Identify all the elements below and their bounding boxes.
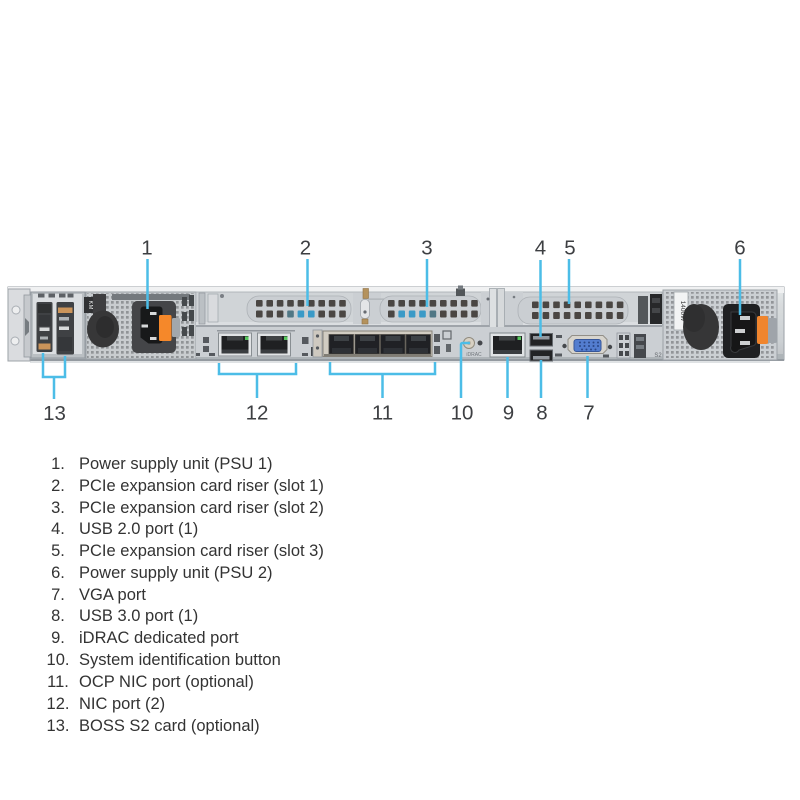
svg-text:4: 4 [535, 237, 546, 260]
svg-text:3: 3 [421, 237, 432, 260]
svg-text:8: 8 [536, 402, 547, 425]
svg-text:10: 10 [451, 402, 474, 425]
svg-text:9: 9 [503, 402, 514, 425]
svg-text:2: 2 [300, 237, 311, 260]
svg-text:5: 5 [564, 237, 575, 260]
svg-text:12: 12 [246, 402, 269, 425]
svg-text:11: 11 [372, 402, 393, 425]
svg-text:13: 13 [43, 402, 66, 425]
svg-text:1: 1 [141, 237, 152, 260]
svg-text:6: 6 [734, 237, 745, 260]
svg-text:7: 7 [583, 402, 594, 425]
